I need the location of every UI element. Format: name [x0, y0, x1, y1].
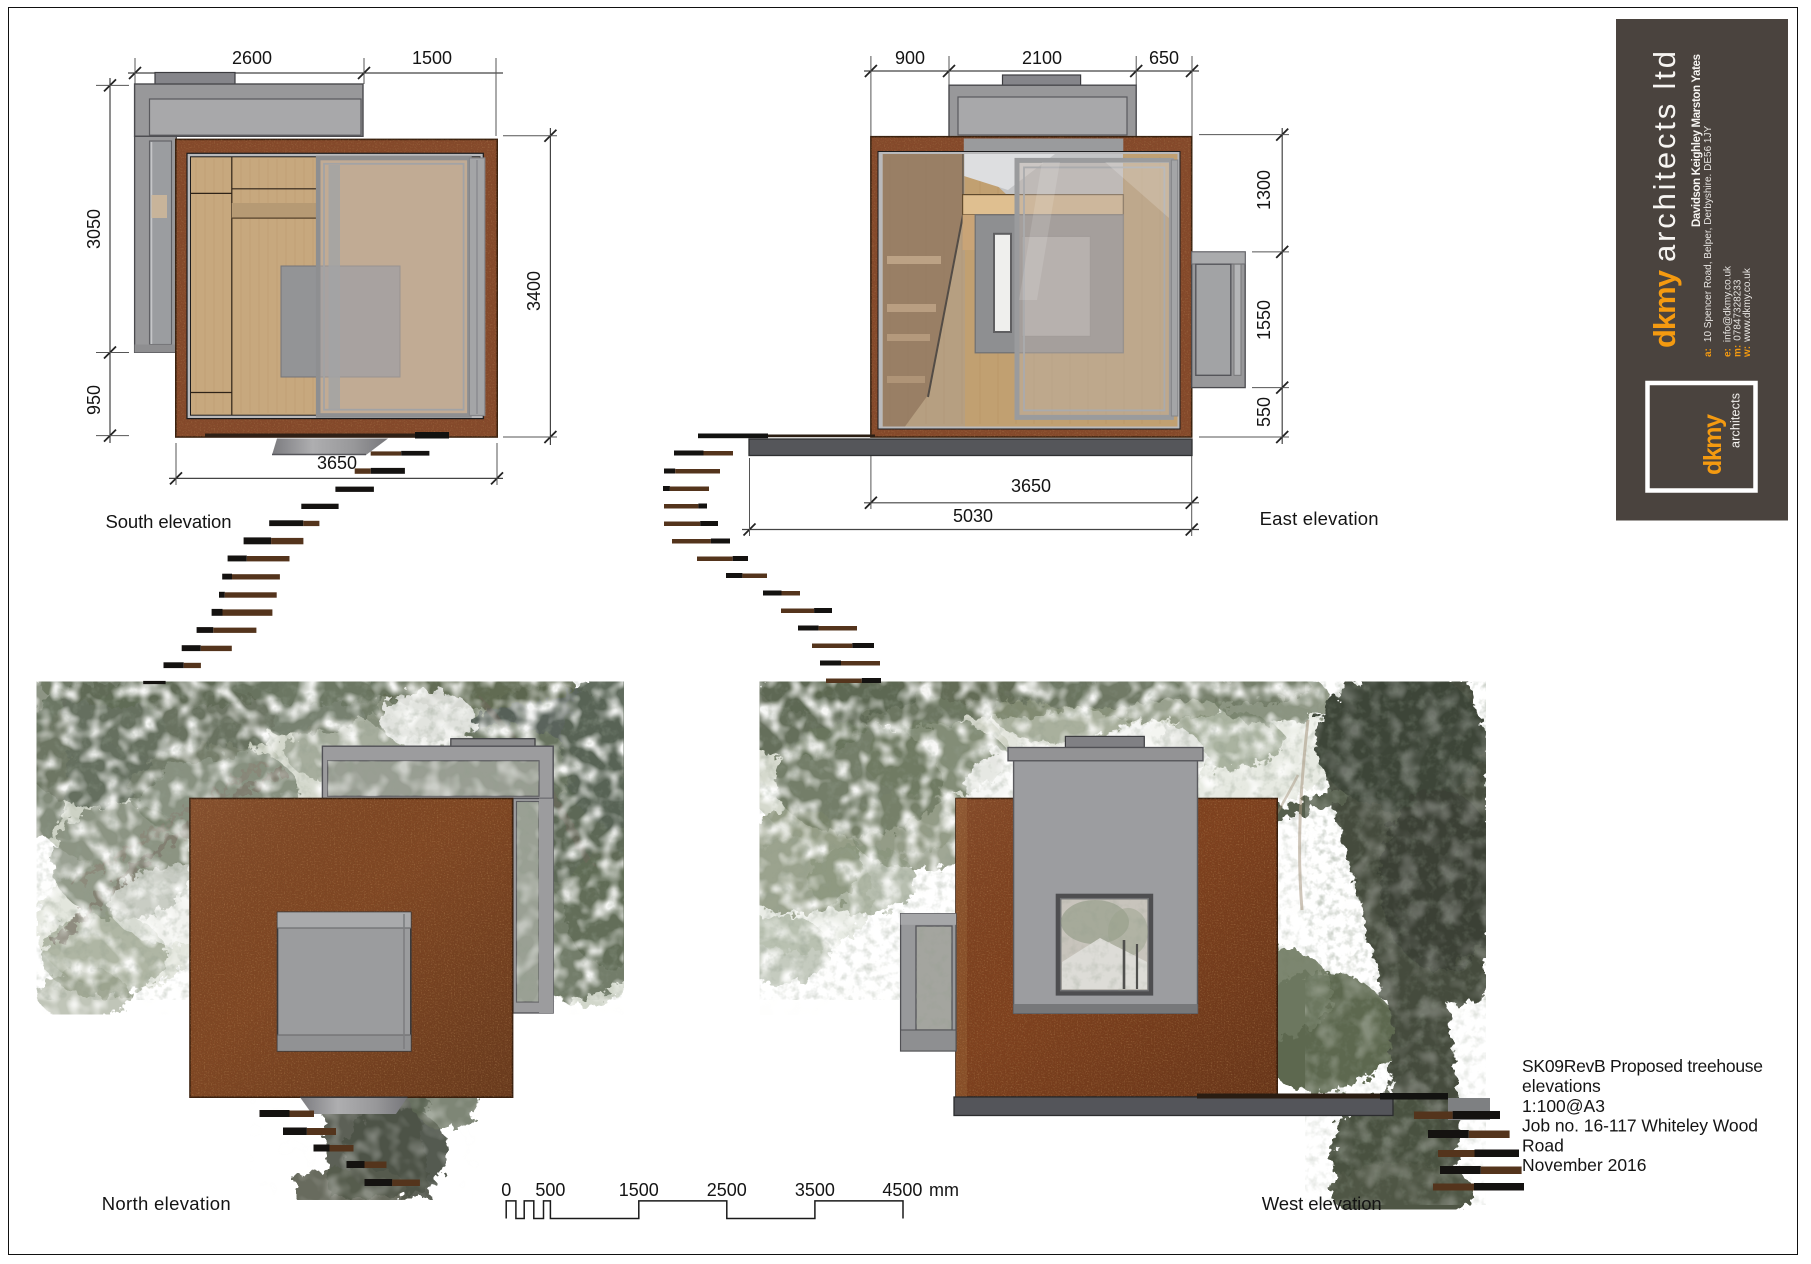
svg-text:2100: 2100: [1022, 48, 1062, 68]
svg-text:1550: 1550: [1254, 300, 1274, 340]
svg-text:1500: 1500: [619, 1180, 659, 1200]
svg-text:4500: 4500: [882, 1180, 922, 1200]
svg-text:950: 950: [84, 385, 104, 415]
svg-text:Job no. 16-117 Whiteley Wood: Job no. 16-117 Whiteley Wood: [1522, 1116, 1758, 1136]
svg-text:500: 500: [535, 1180, 565, 1200]
svg-text:SK09RevB Proposed treehouse: SK09RevB Proposed treehouse: [1522, 1056, 1763, 1076]
svg-text:5030: 5030: [953, 506, 993, 526]
svg-text:East elevation: East elevation: [1260, 508, 1379, 529]
svg-text:3500: 3500: [795, 1180, 835, 1200]
svg-text:dkmy: dkmy: [1699, 414, 1727, 475]
svg-text:mm: mm: [929, 1180, 959, 1200]
svg-text:2600: 2600: [232, 48, 272, 68]
svg-text:2500: 2500: [707, 1180, 747, 1200]
svg-text:3650: 3650: [1011, 476, 1051, 496]
svg-text:550: 550: [1254, 397, 1274, 427]
svg-text:900: 900: [895, 48, 925, 68]
svg-text:3050: 3050: [84, 209, 104, 249]
svg-text:0: 0: [501, 1180, 511, 1200]
svg-text:650: 650: [1149, 48, 1179, 68]
svg-text:3400: 3400: [524, 271, 544, 311]
svg-text:architects: architects: [1729, 393, 1743, 448]
svg-text:Davidson Keighley Marston Yate: Davidson Keighley Marston Yates: [1691, 54, 1703, 227]
svg-text:South elevation: South elevation: [106, 511, 232, 532]
svg-text:a:10 Spencer Road, Belper, Der: a:10 Spencer Road, Belper, Derbyshire. D…: [1703, 126, 1714, 357]
svg-text:November 2016: November 2016: [1522, 1155, 1647, 1175]
svg-text:1300: 1300: [1254, 170, 1274, 210]
svg-text:West elevation: West elevation: [1262, 1193, 1382, 1214]
svg-text:1:100@A3: 1:100@A3: [1522, 1096, 1605, 1116]
svg-text:North elevation: North elevation: [102, 1193, 231, 1214]
svg-text:elevations: elevations: [1522, 1076, 1601, 1096]
svg-text:3650: 3650: [317, 453, 357, 473]
svg-text:1500: 1500: [412, 48, 452, 68]
svg-text:Road: Road: [1522, 1136, 1564, 1156]
svg-text:dkmy: dkmy: [1647, 269, 1682, 348]
